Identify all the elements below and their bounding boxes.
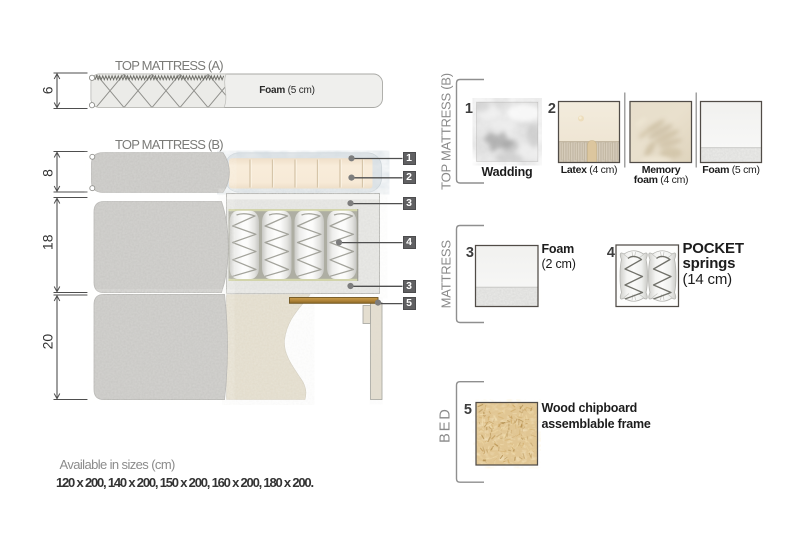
- svg-text:6: 6: [40, 86, 56, 94]
- svg-text:MATTRESS: MATTRESS: [439, 240, 454, 309]
- svg-text:TOP MATTRESS (B): TOP MATTRESS (B): [439, 73, 454, 190]
- svg-text:18: 18: [40, 234, 56, 250]
- svg-text:20: 20: [40, 334, 56, 350]
- svg-text:8: 8: [40, 169, 56, 177]
- svg-text:BED: BED: [438, 407, 454, 443]
